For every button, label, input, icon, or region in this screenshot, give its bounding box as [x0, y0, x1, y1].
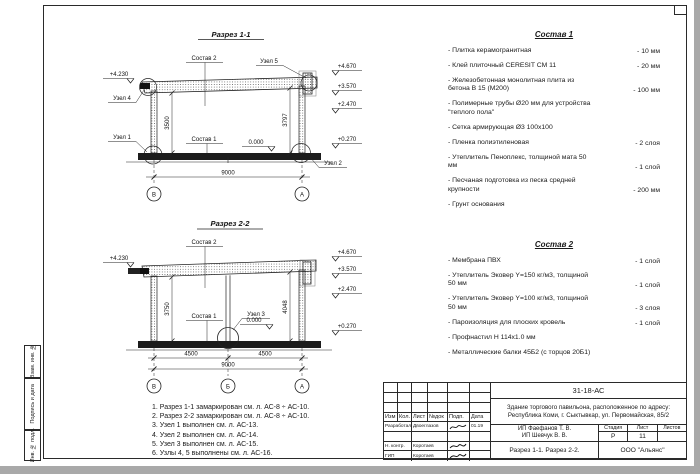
- notes-list: 1. Разрез 1-1 замаркирован см. л. АС-8 ÷…: [152, 404, 309, 459]
- paper-sheet: Взам. инв. № Подпись и дата Инв. № подл.…: [0, 0, 694, 466]
- level-mark-icon: [332, 91, 339, 96]
- list-item: - Сетка армирующая Ø3 100х100: [448, 124, 660, 132]
- stamp-vzam-inv: Взам. инв. №: [24, 345, 41, 378]
- section-2-2-title: Разрез 2-2: [211, 219, 251, 228]
- title-block-left: Изм Кол. Лист №док Подп. Дата Разработал…: [384, 383, 491, 459]
- scanned-drawing-sheet: { "frame": { "side_labels": ["Взам. инв.…: [0, 0, 700, 474]
- name-korotaev-2: Коротаев: [412, 451, 448, 461]
- list-item: - Мембрана ПВХ- 1 слой: [448, 257, 660, 265]
- note-line: 6. Узлы 4, 5 выполнены см. л. АС-16.: [152, 450, 309, 458]
- level-mark-icon: [268, 147, 275, 152]
- leader: [136, 90, 144, 103]
- elev-right-group: +4.670 +3.570 +2.470 +0.270: [332, 250, 362, 335]
- item-value: - 1 слой: [631, 164, 660, 171]
- sostav1-label: Состав 1: [192, 314, 218, 320]
- level-mark-icon: [266, 325, 273, 330]
- leader: [136, 142, 147, 153]
- elev-right-1: +4.670: [338, 64, 357, 70]
- level-mark-icon: [332, 294, 339, 299]
- item-value: - 3 слоя: [631, 305, 660, 312]
- item-name: - Плитка керамогранитная: [448, 47, 531, 55]
- list-item: - Железобетонная монолитная плита из бет…: [448, 77, 660, 94]
- item-name: - Железобетонная монолитная плита из бет…: [448, 77, 596, 94]
- level-mark-icon: [332, 257, 339, 262]
- dim-4500-right: 4500: [258, 352, 272, 358]
- elev-right-4: +0.270: [338, 137, 357, 143]
- sostav1-title: Состав 1: [448, 30, 660, 39]
- title-block-right: 31-18-АС Здание торгового павильона, рас…: [491, 383, 686, 459]
- left-wall: [151, 91, 157, 153]
- item-value: - 2 слоя: [631, 140, 660, 147]
- item-name: - Утеплитель Эковер Y=150 кг/м3, толщино…: [448, 272, 596, 289]
- col-podp: Подп.: [448, 413, 470, 421]
- stamp-inv-podl-label: Инв. № подл.: [30, 428, 36, 462]
- document-number: 31-18-АС: [491, 383, 686, 399]
- stamp-podpis-data: Подпись и дата: [24, 378, 41, 430]
- col-list: Лист: [412, 413, 428, 421]
- note-line: 3. Узел 1 выполнен см. л. АС-13.: [152, 422, 309, 430]
- note-line: 2. Разрез 2-2 замаркирован см. л. АС-8 ÷…: [152, 413, 309, 421]
- item-value: - 20 мм: [633, 63, 660, 70]
- roof-left-overhang: [128, 268, 140, 274]
- item-name: - Пароизоляция для плоских кровель: [448, 319, 565, 327]
- elev-right-1: +4.670: [338, 250, 357, 256]
- sostav1-label: Состав 1: [192, 137, 218, 143]
- role-razrabotal: Разработал: [384, 422, 412, 431]
- elev-left-label: +4.230: [110, 72, 129, 78]
- list-item: - Пароизоляция для плоских кровель- 1 сл…: [448, 319, 660, 327]
- elev-right-4: +0.270: [338, 324, 357, 330]
- level-mark-icon: [332, 109, 339, 114]
- list-item: - Пленка полиэтиленовая- 2 слоя: [448, 139, 660, 147]
- signature: [448, 422, 470, 431]
- sheet-label: Лист: [628, 425, 657, 431]
- item-name: - Утеплитель Пеноплекс, толщиной мата 50…: [448, 154, 596, 171]
- item-value: - 1 слой: [631, 320, 660, 327]
- list-item: - Клей плиточный CERESIT СМ 11- 20 мм: [448, 62, 660, 70]
- roof-left-cap: [140, 83, 150, 89]
- dim-4048: 4048: [283, 300, 289, 314]
- list-item: - Утеплитель Пеноплекс, толщиной мата 50…: [448, 154, 660, 171]
- role-gip: ГИП: [384, 451, 412, 461]
- elev-left-label: +4.230: [110, 256, 129, 262]
- level-mark-icon: [127, 263, 134, 268]
- floor-slab: [138, 153, 321, 160]
- section-2-2-drawing: Разрез 2-2 3750 4048 Состав 2 Узел 3 Сос…: [70, 216, 405, 408]
- item-name: - Полимерные трубы Ø20 мм для устройства…: [448, 100, 596, 117]
- client-1: ИП Фаефанов Т. В.: [518, 426, 571, 433]
- uzel5-label: Узел 5: [260, 59, 278, 65]
- sostav1-panel: Состав 1 - Плитка керамогранитная- 10 мм…: [448, 30, 660, 216]
- list-item: - Песчаная подготовка из песка средней к…: [448, 177, 660, 194]
- signature: [448, 442, 470, 450]
- sostav2-label: Состав 2: [192, 56, 218, 62]
- list-item: - Профнастил Н 114х1.0 мм: [448, 334, 660, 342]
- dim-3750: 3750: [165, 302, 171, 316]
- left-wall: [151, 276, 157, 341]
- uzel1-label: Узел 1: [113, 135, 131, 141]
- axis-label-A: А: [300, 385, 304, 391]
- note-line: 4. Узел 2 выполнен см. л. АС-14.: [152, 432, 309, 440]
- list-item: - Металлические балки 45Б2 (с торцов 20Б…: [448, 349, 660, 357]
- section-1-1-title: Разрез 1-1: [212, 30, 251, 39]
- date: 01.19: [470, 422, 490, 431]
- uzel4-label: Узел 4: [113, 96, 131, 102]
- level-mark-icon: [332, 144, 339, 149]
- dim-3500: 3500: [165, 116, 171, 130]
- clients: ИП Фаефанов Т. В. ИП Шевчук В. В.: [491, 425, 599, 441]
- dim-9000: 9000: [221, 363, 235, 369]
- stage-label: Стадия: [599, 425, 628, 431]
- level-mark-icon: [127, 79, 134, 84]
- note-line: 5. Узел 3 выполнен см. л. АС-15.: [152, 441, 309, 449]
- item-name: - Пленка полиэтиленовая: [448, 139, 529, 147]
- role-nkontr: Н. контр.: [384, 442, 412, 450]
- sostav2-label: Состав 2: [192, 240, 218, 246]
- sostav2-title: Состав 2: [448, 240, 660, 249]
- item-name: - Металлические балки 45Б2 (с торцов 20Б…: [448, 349, 590, 357]
- item-value: - 200 мм: [629, 187, 660, 194]
- title-block: Изм Кол. Лист №док Подп. Дата Разработал…: [383, 382, 687, 460]
- stamp-inv-podl: Инв. № подл.: [24, 430, 41, 461]
- axis-label-B: В: [152, 385, 156, 391]
- frame-corner-box: [674, 5, 687, 15]
- leader: [283, 66, 306, 79]
- level-mark-icon: [332, 71, 339, 76]
- roof-slab: [142, 77, 317, 93]
- right-wall: [299, 86, 305, 153]
- company-name: ООО "Альянс": [599, 442, 686, 459]
- item-name: - Клей плиточный CERESIT СМ 11: [448, 62, 556, 70]
- floor-slab: [138, 341, 321, 348]
- item-name: - Сетка армирующая Ø3 100х100: [448, 124, 553, 132]
- right-wall: [299, 270, 305, 341]
- list-item: - Утеплитель Эковер Y=100 кг/м3, толщино…: [448, 295, 660, 312]
- note-line: 1. Разрез 1-1 замаркирован см. л. АС-8 ÷…: [152, 404, 309, 412]
- col-kol: Кол.: [398, 413, 412, 421]
- name-dvoeglazov: Двоеглазов: [412, 422, 448, 431]
- item-name: - Мембрана ПВХ: [448, 257, 501, 265]
- sostav2-panel: Состав 2 - Мембрана ПВХ- 1 слой - Утепли…: [448, 240, 660, 364]
- item-name: - Профнастил Н 114х1.0 мм: [448, 334, 536, 342]
- zero-level-label: 0.000: [246, 318, 262, 324]
- elev-right-2: +3.570: [338, 267, 357, 273]
- col-izm: Изм: [384, 413, 398, 421]
- stage-value: Р: [599, 432, 628, 441]
- list-item: - Полимерные трубы Ø20 мм для устройства…: [448, 100, 660, 117]
- stamp-vzam-inv-label: Взам. инв. №: [30, 344, 36, 378]
- elev-right-3: +2.470: [338, 102, 357, 108]
- uzel2-label: Узел 2: [324, 161, 342, 167]
- axis-label-A: А: [300, 193, 304, 199]
- item-name: - Песчаная подготовка из песка средней к…: [448, 177, 596, 194]
- level-mark-icon: [332, 274, 339, 279]
- list-item: - Грунт основания: [448, 201, 660, 209]
- dim-4500-left: 4500: [184, 352, 198, 358]
- item-value: - 1 слой: [631, 258, 660, 265]
- elev-right-3: +2.470: [338, 287, 357, 293]
- axis-label-B2: Б: [226, 385, 230, 391]
- elev-right-group: +4.670 +3.570 +2.470 +0.270: [332, 64, 362, 148]
- dim-9000: 9000: [221, 171, 235, 177]
- sheet-title: Разрез 1-1. Разрез 2-2.: [491, 442, 599, 459]
- sheets-label: Листов: [658, 425, 686, 431]
- zero-level-label: 0.000: [248, 140, 264, 146]
- object-description: Здание торгового павильона, расположенно…: [491, 399, 686, 425]
- client-2: ИП Шевчук В. В.: [522, 433, 567, 440]
- signature: [448, 451, 470, 461]
- col-ndok: №док: [428, 413, 448, 421]
- name-korotaev-1: Коротаев: [412, 442, 448, 450]
- axis-label-B: В: [152, 193, 156, 199]
- level-mark-icon: [332, 331, 339, 336]
- roof-left-cap: [140, 268, 149, 274]
- list-item: - Плитка керамогранитная- 10 мм: [448, 47, 660, 55]
- section-1-1-drawing: Разрез 1-1 3500 3797 Состав 2 Узел 5: [70, 26, 405, 216]
- dim-3797: 3797: [283, 113, 289, 127]
- sheets-value: [658, 432, 686, 441]
- item-value: - 100 мм: [629, 87, 660, 94]
- stage-table: Стадия Лист Листов Р 11: [599, 425, 686, 441]
- item-name: - Утеплитель Эковер Y=100 кг/м3, толщино…: [448, 295, 596, 312]
- elev-right-2: +3.570: [338, 84, 357, 90]
- list-item: - Утеплитель Эковер Y=150 кг/м3, толщино…: [448, 272, 660, 289]
- sheet-value: 11: [628, 432, 657, 441]
- item-value: - 10 мм: [633, 48, 660, 55]
- col-data: Дата: [470, 413, 490, 421]
- stamp-podpis-data-label: Подпись и дата: [30, 384, 36, 424]
- item-name: - Грунт основания: [448, 201, 505, 209]
- item-value: - 1 слой: [631, 282, 660, 289]
